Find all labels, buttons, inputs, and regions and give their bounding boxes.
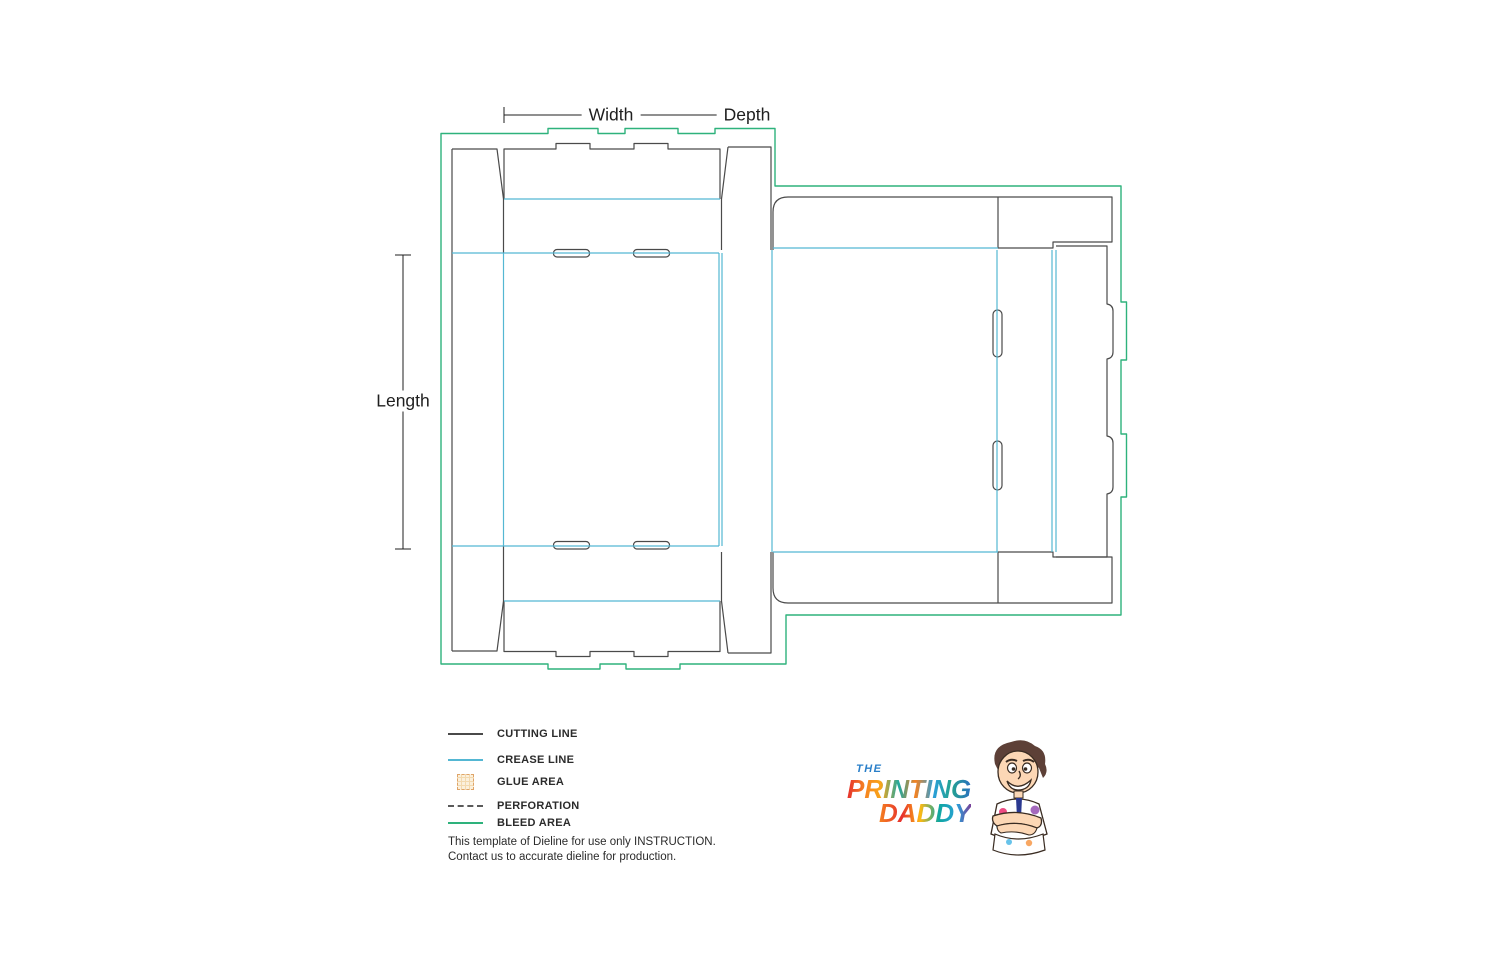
legend-row-cutting: CUTTING LINE <box>448 727 578 741</box>
width-label: Width <box>582 105 641 126</box>
legend-row-glue: GLUE AREA <box>448 775 564 789</box>
legend-row-bleed: BLEED AREA <box>448 816 571 830</box>
legend-label: BLEED AREA <box>497 817 571 829</box>
depth-label: Depth <box>717 105 778 126</box>
instruction-note-line1: This template of Dieline for use only IN… <box>448 835 716 850</box>
crease-line-icon <box>448 759 483 761</box>
cutting-lines <box>452 144 1113 657</box>
perforation-line-icon <box>448 805 483 807</box>
dieline-drawing <box>0 0 1500 978</box>
bleed-area-icon <box>448 822 483 824</box>
legend-label: PERFORATION <box>497 800 580 812</box>
legend-label: GLUE AREA <box>497 776 564 788</box>
crease-lines <box>452 199 1056 601</box>
printing-daddy-logo: THE PRINTING DADDY <box>845 738 1060 863</box>
instruction-note-line2: Contact us to accurate dieline for produ… <box>448 850 716 865</box>
mascot-illustration <box>973 738 1061 863</box>
length-label: Length <box>369 391 437 412</box>
legend-row-crease: CREASE LINE <box>448 753 574 767</box>
glue-area-icon <box>448 774 483 790</box>
legend-label: CREASE LINE <box>497 754 574 766</box>
logo-daddy-text: DADDY <box>879 798 971 829</box>
legend-row-perforation: PERFORATION <box>448 799 580 813</box>
dieline-template-canvas: Width Depth Length CUTTING LINE CREASE L… <box>0 0 1500 978</box>
bleed-outline <box>441 129 1127 670</box>
legend-label: CUTTING LINE <box>497 728 578 740</box>
cutting-line-icon <box>448 733 483 735</box>
instruction-note: This template of Dieline for use only IN… <box>448 835 716 865</box>
